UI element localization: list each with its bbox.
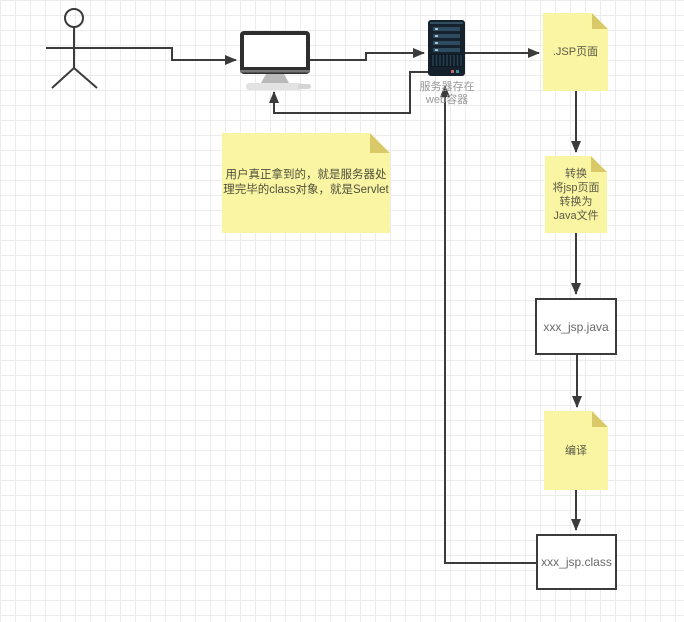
note-convert-line2: 将jsp页面 bbox=[552, 181, 599, 195]
note-jsp-page[interactable]: .JSP页面 bbox=[543, 13, 608, 91]
server-status-led-red bbox=[451, 70, 454, 73]
mouse bbox=[298, 84, 311, 89]
actor-right-leg bbox=[74, 68, 97, 88]
box-java-file-label: xxx_jsp.java bbox=[543, 320, 608, 334]
folded-corner-icon bbox=[591, 156, 607, 172]
box-class-file-label: xxx_jsp.class bbox=[541, 555, 612, 569]
connector-server-to-monitor-return[interactable] bbox=[274, 72, 428, 113]
monitor-chin bbox=[240, 70, 310, 73]
note-compile[interactable]: 编译 bbox=[544, 411, 608, 490]
connector-monitor-to-server[interactable] bbox=[310, 53, 424, 60]
monitor-stand bbox=[261, 74, 289, 83]
note-convert-line3: 转换为 bbox=[560, 195, 593, 209]
keyboard bbox=[246, 83, 303, 90]
box-java-file[interactable]: xxx_jsp.java bbox=[535, 298, 617, 355]
connector-class-file-to-server[interactable] bbox=[445, 86, 536, 563]
server-status-led-teal bbox=[456, 70, 459, 73]
note-explanation[interactable]: 用户真正拿到的，就是服务器处 理完毕的class对象，就是Servlet bbox=[222, 133, 390, 233]
server-top-strip bbox=[430, 22, 463, 24]
note-convert-line4: Java文件 bbox=[553, 209, 598, 223]
diagram-canvas[interactable]: 服务器存在 web容器 .JSP页面 转换 将jsp页面 转换为 Java文件 … bbox=[0, 0, 684, 622]
actor-left-leg bbox=[52, 68, 74, 88]
note-explanation-line2: 理完毕的class对象，就是Servlet bbox=[223, 183, 389, 198]
note-compile-label: 编译 bbox=[565, 444, 587, 458]
note-convert-line1: 转换 bbox=[565, 167, 587, 181]
server-caption-line1: 服务器存在 bbox=[413, 81, 481, 94]
box-class-file[interactable]: xxx_jsp.class bbox=[536, 534, 617, 590]
monitor-icon[interactable] bbox=[240, 31, 311, 90]
folded-corner-icon bbox=[370, 133, 390, 153]
connector-user-to-monitor[interactable] bbox=[100, 48, 236, 60]
monitor-screen bbox=[244, 35, 306, 67]
note-convert[interactable]: 转换 将jsp页面 转换为 Java文件 bbox=[545, 156, 607, 233]
user-actor-icon[interactable] bbox=[46, 9, 102, 88]
server-slot-bars bbox=[433, 27, 460, 52]
note-explanation-line1: 用户真正拿到的，就是服务器处 bbox=[226, 168, 387, 183]
server-icon[interactable] bbox=[428, 20, 465, 76]
folded-corner-icon bbox=[592, 13, 608, 29]
monitor-bezel bbox=[240, 31, 310, 74]
server-caption: 服务器存在 web容器 bbox=[413, 81, 481, 106]
note-jsp-page-label: .JSP页面 bbox=[553, 45, 598, 59]
actor-head bbox=[65, 9, 83, 27]
server-vent-lines bbox=[433, 55, 461, 66]
server-caption-line2: web容器 bbox=[413, 94, 481, 107]
server-vent-panel bbox=[430, 54, 463, 67]
folded-corner-icon bbox=[592, 411, 608, 427]
server-body bbox=[428, 20, 465, 76]
